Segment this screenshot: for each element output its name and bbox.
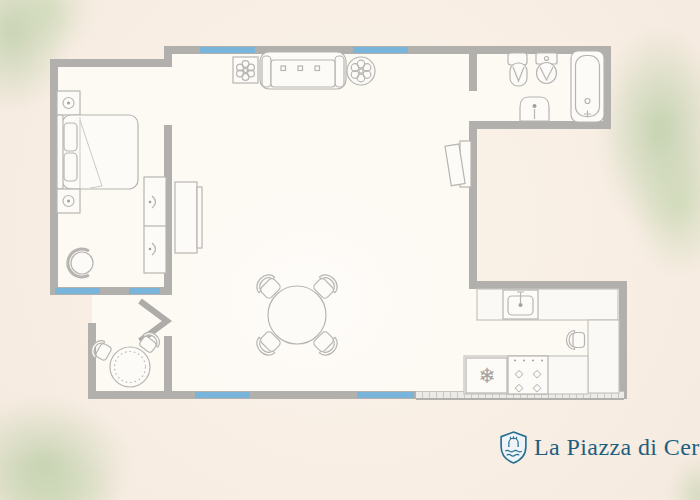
furniture-layer: ❄ ◇ ◇ ◇ ◇: [0, 0, 700, 500]
bathtub: [571, 51, 604, 122]
burner-icon: ◇: [515, 367, 524, 380]
wall-mounted-tv: [445, 141, 471, 187]
side-counter: [588, 320, 619, 393]
brand-logo: La Piazza di Cerr: [500, 429, 700, 465]
round-dining-table: [253, 271, 342, 360]
sideboard: [175, 182, 202, 253]
bistro-set: [88, 329, 163, 387]
nightstand-with-lamp-bottom: [57, 189, 80, 213]
burner-icon: ◇: [515, 381, 524, 394]
stove: ◇ ◇ ◇ ◇: [508, 356, 548, 394]
toilet: [536, 53, 557, 84]
nightstand-with-lamp-top: [57, 91, 80, 115]
floorplan-page: { "canvas": {"width": 700, "height": 500…: [0, 0, 700, 500]
brand-name: La Piazza di Cerr: [534, 434, 700, 461]
counter-with-sink: [477, 289, 618, 320]
burner-icon: ◇: [533, 367, 542, 380]
bistro-chair: [88, 338, 113, 363]
potted-plant-square: [233, 57, 258, 83]
potted-plant-round: [347, 57, 375, 85]
double-bed: [57, 115, 138, 189]
shield-icon: [500, 431, 527, 464]
chest-of-drawers: [144, 177, 166, 273]
bedroom-armchair: [68, 249, 93, 277]
refrigerator: ❄: [466, 358, 507, 393]
washbasin: [520, 97, 549, 121]
snowflake-icon: ❄: [478, 364, 496, 388]
bidet: [508, 53, 527, 86]
burner-icon: ◇: [533, 381, 542, 394]
bar-chair: [567, 331, 585, 350]
sofa: [260, 52, 346, 89]
